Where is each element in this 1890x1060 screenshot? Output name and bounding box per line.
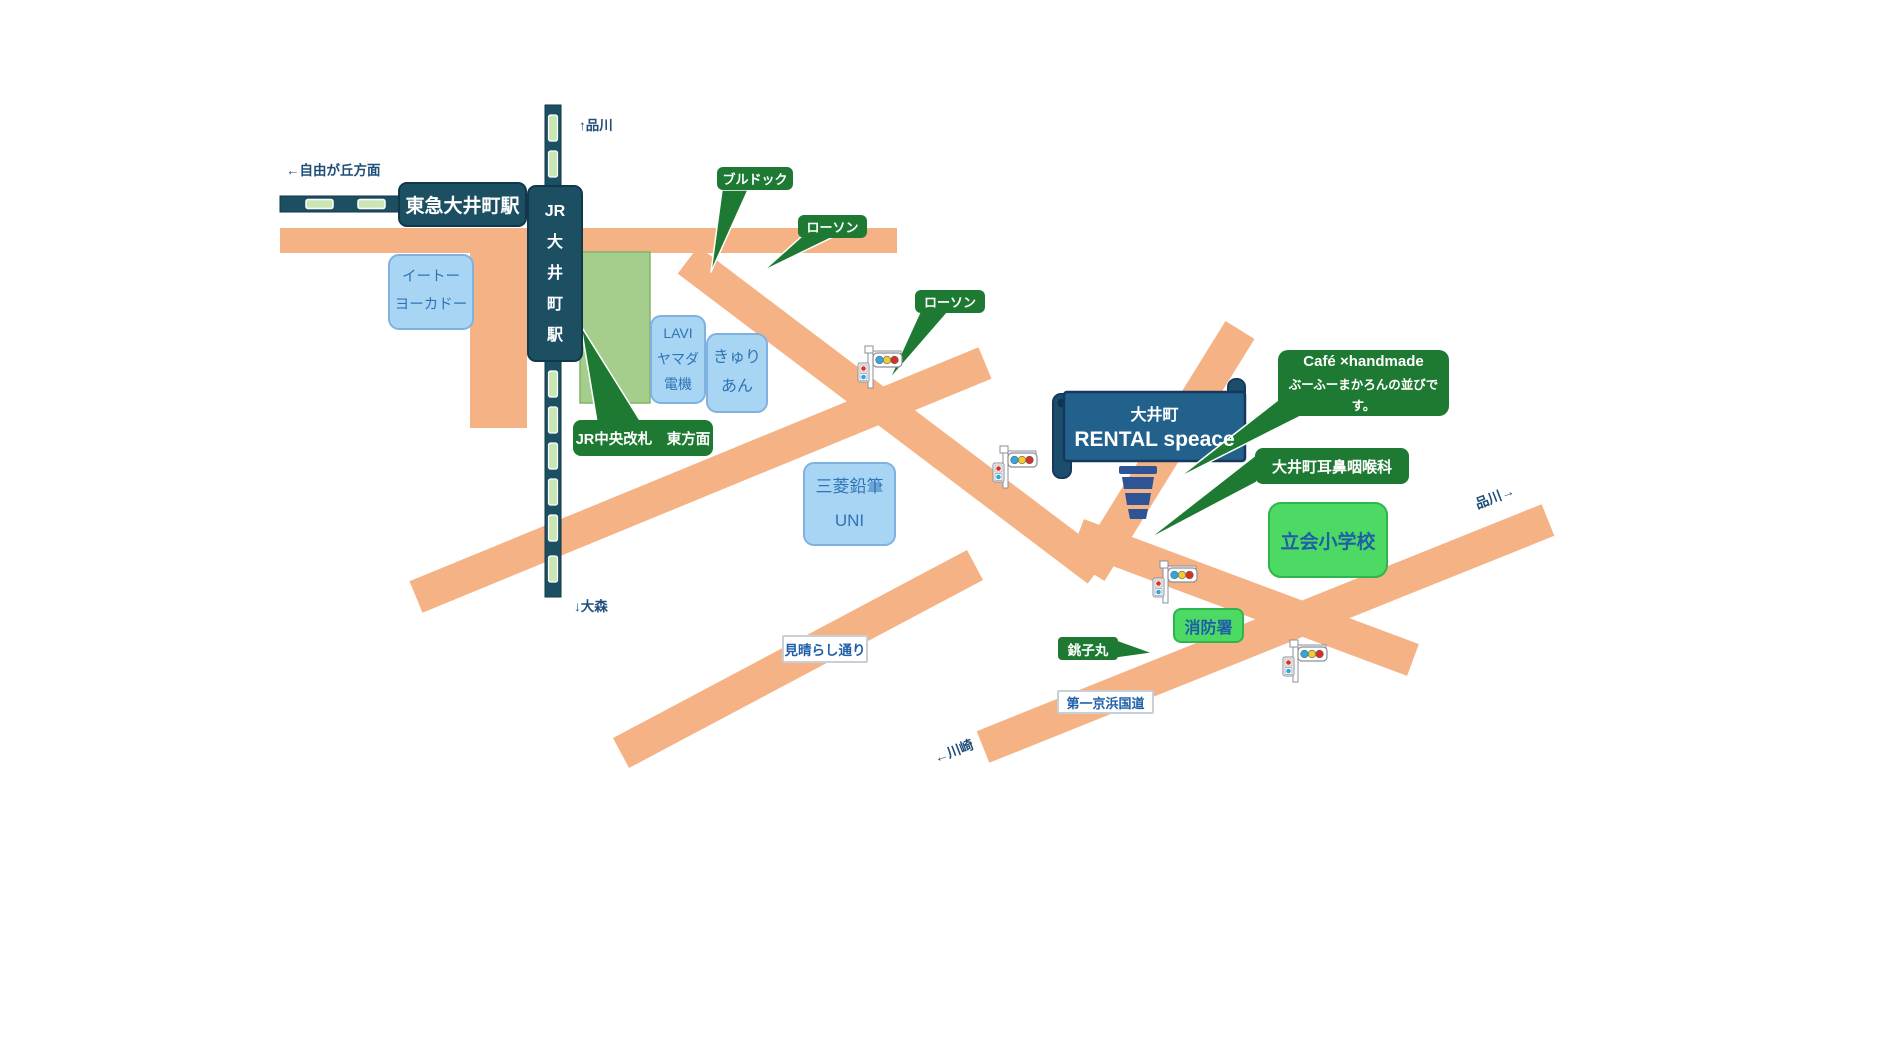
- choshimaru-callout: 銚子丸: [1058, 637, 1118, 660]
- mitsubishi-pencil-box: 三菱鉛筆 UNI: [803, 462, 896, 546]
- lawson1-label: ローソン: [806, 217, 858, 236]
- jr-station-label: JR 大 井 町 駅: [545, 196, 565, 352]
- fire-station-box: 消防署: [1173, 608, 1244, 643]
- direction-jiyugaoka: ←自由が丘方面: [286, 159, 381, 179]
- miharashi-street-label-box: 見晴らし通り: [782, 635, 868, 663]
- keihin-road-label: 第一京浜国道: [1066, 693, 1144, 712]
- jibika-label: 大井町耳鼻咽喉科: [1272, 456, 1392, 477]
- lawson2-label: ローソン: [924, 292, 976, 311]
- pointer-choshimaru: [1117, 640, 1153, 658]
- destination-area-label: 大井町: [1130, 401, 1178, 425]
- tachiai-school-box: 立会小学校: [1268, 502, 1388, 578]
- mitsubishi-pencil-label: 三菱鉛筆 UNI: [816, 470, 884, 538]
- jr-central-gate-callout: JR中央改札 東方面: [573, 420, 713, 456]
- cafe-handmade-callout: Café ×handmade ぶーふーまかろんの並びです。: [1278, 350, 1449, 416]
- oimachi-guide-map: { "map": { "title": "大井町 RENTAL speace 案…: [0, 0, 1890, 1060]
- jibika-callout: 大井町耳鼻咽喉科: [1255, 448, 1409, 484]
- jr-oimachi-station-box: JR 大 井 町 駅: [527, 185, 583, 362]
- keihin-road-label-box: 第一京浜国道: [1057, 690, 1154, 714]
- tokyu-oimachi-station-box: 東急大井町駅: [398, 182, 527, 227]
- destination-name-label: RENTAL speace: [1074, 428, 1234, 452]
- direction-shinagawa-up: ↑品川: [579, 114, 613, 134]
- tokyu-station-label: 東急大井町駅: [405, 191, 519, 218]
- lavi-yamada-box: LAVI ヤマダ 電機: [650, 315, 706, 404]
- cafe-handmade-line2: ぶーふーまかろんの並びです。: [1278, 375, 1449, 418]
- traffic-signal-4: [1283, 640, 1327, 682]
- kyurian-box: きゅり あん: [706, 333, 768, 413]
- ito-yokado-box: イートー ヨーカドー: [388, 254, 474, 330]
- traffic-signal-2: [993, 446, 1037, 488]
- rental-space-banner-text: 大井町 RENTAL speace: [1064, 392, 1245, 461]
- miharashi-street-label: 見晴らし通り: [785, 639, 866, 659]
- map-graphics: [0, 0, 1890, 1060]
- lavi-yamada-label: LAVI ヤマダ 電機: [657, 321, 699, 399]
- tachiai-school-label: 立会小学校: [1280, 527, 1375, 554]
- bulldog-label: ブルドック: [722, 169, 787, 188]
- traffic-signal-3: [1153, 561, 1197, 603]
- road-station-west-stub: [470, 252, 527, 428]
- ito-yokado-label: イートー ヨーカドー: [395, 264, 468, 319]
- bulldog-callout: ブルドック: [717, 167, 793, 190]
- direction-omori: ↓大森: [574, 595, 608, 615]
- kyurian-label: きゅり あん: [713, 344, 761, 402]
- fire-station-label: 消防署: [1184, 614, 1232, 638]
- jr-central-gate-label: JR中央改札 東方面: [576, 428, 711, 449]
- choshimaru-label: 銚子丸: [1068, 639, 1109, 659]
- lawson2-callout: ローソン: [915, 290, 985, 313]
- lawson1-callout: ローソン: [798, 215, 867, 238]
- cafe-handmade-line1: Café ×handmade: [1303, 349, 1423, 375]
